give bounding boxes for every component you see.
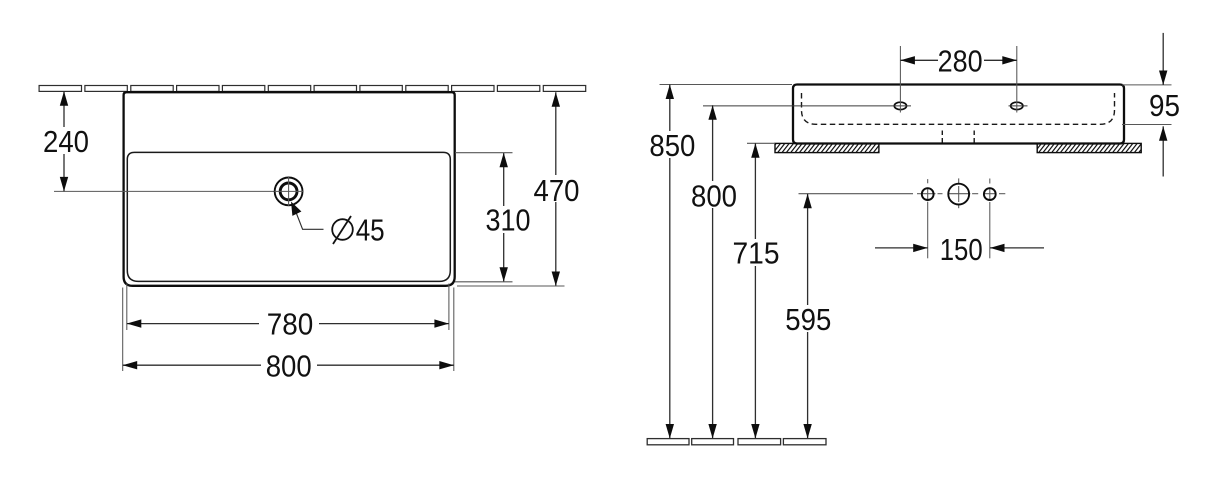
- svg-text:280: 280: [938, 44, 983, 78]
- svg-text:240: 240: [43, 125, 89, 159]
- svg-text:715: 715: [733, 237, 780, 271]
- svg-text:780: 780: [267, 308, 314, 342]
- svg-text:800: 800: [691, 179, 737, 213]
- svg-text:850: 850: [649, 129, 695, 163]
- svg-text:800: 800: [266, 350, 312, 384]
- svg-text:45: 45: [356, 214, 385, 248]
- svg-text:95: 95: [1149, 89, 1180, 123]
- svg-text:310: 310: [486, 204, 531, 238]
- svg-text:470: 470: [534, 174, 580, 208]
- svg-text:595: 595: [785, 303, 831, 337]
- svg-text:150: 150: [940, 233, 983, 267]
